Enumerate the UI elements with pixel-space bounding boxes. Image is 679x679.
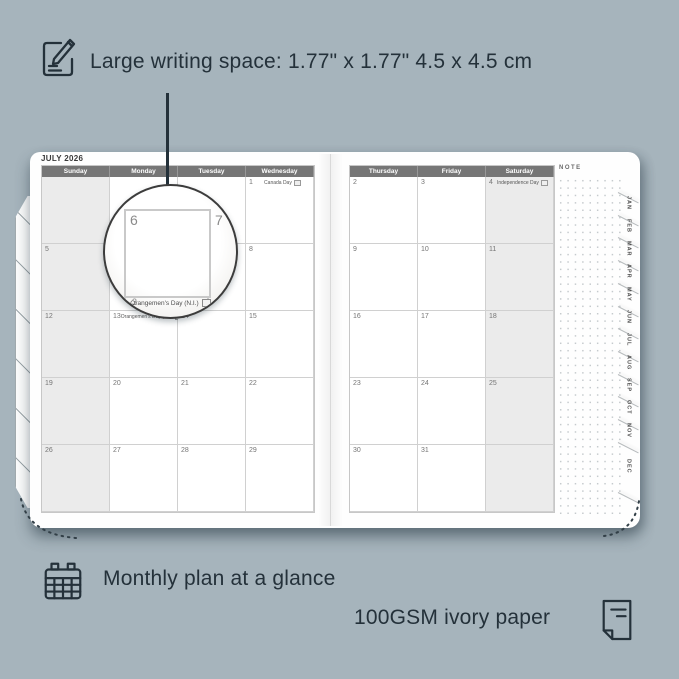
calendar-cell-2: 2 bbox=[350, 177, 418, 244]
magnified-adjacent-date: 7 bbox=[215, 212, 223, 228]
date-number: 13 bbox=[113, 313, 121, 321]
calendar-cell-25: 25 bbox=[486, 378, 554, 445]
date-number: 21 bbox=[181, 380, 189, 388]
date-number: 3 bbox=[421, 179, 425, 187]
day-header-tuesday: Tuesday bbox=[178, 166, 246, 177]
right-page-calendar-grid: ThursdayFridaySaturday234Independence Da… bbox=[349, 165, 555, 513]
date-number: 11 bbox=[489, 246, 496, 254]
month-tab-dec: DEC bbox=[620, 442, 637, 492]
day-header-thursday: Thursday bbox=[350, 166, 418, 177]
day-header-friday: Friday bbox=[418, 166, 486, 177]
callout-connector-line bbox=[166, 93, 169, 187]
paper-icon bbox=[598, 596, 636, 644]
date-number: 16 bbox=[353, 313, 361, 321]
date-number: 8 bbox=[249, 246, 253, 254]
page-spine bbox=[330, 154, 331, 526]
month-tab-jan: JAN bbox=[620, 192, 637, 215]
calendar-cell-19: 19 bbox=[42, 378, 110, 445]
day-header-saturday: Saturday bbox=[486, 166, 554, 177]
date-number: 20 bbox=[113, 380, 121, 388]
date-number: 9 bbox=[353, 246, 357, 254]
date-number: 1 bbox=[249, 179, 253, 187]
month-tab-sep: SEP bbox=[620, 374, 637, 397]
month-tab-feb: FEB bbox=[620, 215, 637, 238]
pencil-note-icon bbox=[36, 34, 84, 82]
month-tab-jul: JUL bbox=[620, 328, 637, 351]
us-flag-icon bbox=[541, 180, 548, 186]
calendar-grid-icon bbox=[40, 558, 86, 604]
calendar-cell-4: 4Independence Day bbox=[486, 177, 554, 244]
date-number: 19 bbox=[45, 380, 53, 388]
holiday-label: Independence Day bbox=[497, 180, 539, 186]
magnifier-circle: 6 7 3 Orangemen's Day (N.I.) bbox=[103, 184, 238, 319]
date-number: 10 bbox=[421, 246, 429, 254]
bottom-left-annotation-text: Monthly plan at a glance bbox=[103, 567, 335, 591]
month-tab-oct: OCT bbox=[620, 396, 637, 419]
calendar-cell-18: 18 bbox=[486, 311, 554, 378]
calendar-cell-9: 9 bbox=[350, 244, 418, 311]
calendar-cell-10: 10 bbox=[418, 244, 486, 311]
month-tab-nov: NOV bbox=[620, 419, 637, 442]
ni-flag-icon bbox=[202, 299, 211, 307]
spine-shading-left bbox=[318, 154, 330, 526]
date-number: 29 bbox=[249, 447, 257, 455]
date-number: 15 bbox=[249, 313, 257, 321]
calendar-cell-29: 29 bbox=[246, 445, 314, 512]
calendar-cell-20: 20 bbox=[110, 378, 178, 445]
date-number: 5 bbox=[45, 246, 49, 254]
day-header-wednesday: Wednesday bbox=[246, 166, 314, 177]
magnified-date: 6 bbox=[130, 212, 138, 228]
month-tab-apr: APR bbox=[620, 260, 637, 283]
spine-shading-right bbox=[331, 154, 343, 526]
date-number: 12 bbox=[45, 313, 53, 321]
calendar-cell-26: 26 bbox=[42, 445, 110, 512]
calendar-cell-13: 13Orangemen's Day (N.I.) bbox=[110, 311, 178, 378]
calendar-cell-17: 17 bbox=[418, 311, 486, 378]
date-number: 17 bbox=[421, 313, 429, 321]
date-number: 24 bbox=[421, 380, 429, 388]
magnified-holiday-label: Orangemen's Day (N.I.) bbox=[130, 300, 198, 307]
note-dot-grid bbox=[557, 177, 621, 515]
date-number: 28 bbox=[181, 447, 189, 455]
month-tab-jun: JUN bbox=[620, 306, 637, 329]
date-number: 27 bbox=[113, 447, 121, 455]
date-number: 18 bbox=[489, 313, 497, 321]
calendar-cell-30: 30 bbox=[350, 445, 418, 512]
calendar-cell-12: 12 bbox=[42, 311, 110, 378]
holiday-entry: Canada Day bbox=[264, 180, 301, 186]
date-number: 30 bbox=[353, 447, 361, 455]
canada-flag-icon bbox=[294, 180, 301, 186]
calendar-cell-1: 1Canada Day bbox=[246, 177, 314, 244]
top-annotation-text: Large writing space: 1.77" x 1.77" 4.5 x… bbox=[90, 50, 532, 74]
calendar-cell-15: 15 bbox=[246, 311, 314, 378]
holiday-entry: Independence Day bbox=[497, 180, 548, 186]
calendar-cell-27: 27 bbox=[110, 445, 178, 512]
date-number: 31 bbox=[421, 447, 429, 455]
calendar-cell-14: 14 bbox=[178, 311, 246, 378]
bottom-right-annotation-text: 100GSM ivory paper bbox=[354, 606, 550, 630]
date-number: 23 bbox=[353, 380, 361, 388]
calendar-cell-5: 5 bbox=[42, 244, 110, 311]
date-number: 25 bbox=[489, 380, 497, 388]
calendar-cell-empty bbox=[42, 177, 110, 244]
date-number: 22 bbox=[249, 380, 257, 388]
calendar-cell-11: 11 bbox=[486, 244, 554, 311]
date-number: 4 bbox=[489, 179, 493, 187]
calendar-cell-21: 21 bbox=[178, 378, 246, 445]
date-number: 26 bbox=[45, 447, 53, 455]
month-tab-may: MAY bbox=[620, 283, 637, 306]
month-tab-mar: MAR bbox=[620, 237, 637, 260]
calendar-cell-16: 16 bbox=[350, 311, 418, 378]
calendar-cell-24: 24 bbox=[418, 378, 486, 445]
calendar-cell-31: 31 bbox=[418, 445, 486, 512]
day-header-sunday: Sunday bbox=[42, 166, 110, 177]
month-tab-aug: AUG bbox=[620, 351, 637, 374]
date-number: 2 bbox=[353, 179, 357, 187]
calendar-cell-empty bbox=[486, 445, 554, 512]
note-label: NOTE bbox=[559, 165, 582, 171]
calendar-cell-28: 28 bbox=[178, 445, 246, 512]
month-title: JULY 2026 bbox=[41, 154, 83, 163]
magnified-holiday-row: Orangemen's Day (N.I.) bbox=[105, 299, 236, 307]
calendar-cell-3: 3 bbox=[418, 177, 486, 244]
calendar-cell-8: 8 bbox=[246, 244, 314, 311]
holiday-label: Canada Day bbox=[264, 180, 292, 186]
calendar-cell-23: 23 bbox=[350, 378, 418, 445]
calendar-cell-22: 22 bbox=[246, 378, 314, 445]
